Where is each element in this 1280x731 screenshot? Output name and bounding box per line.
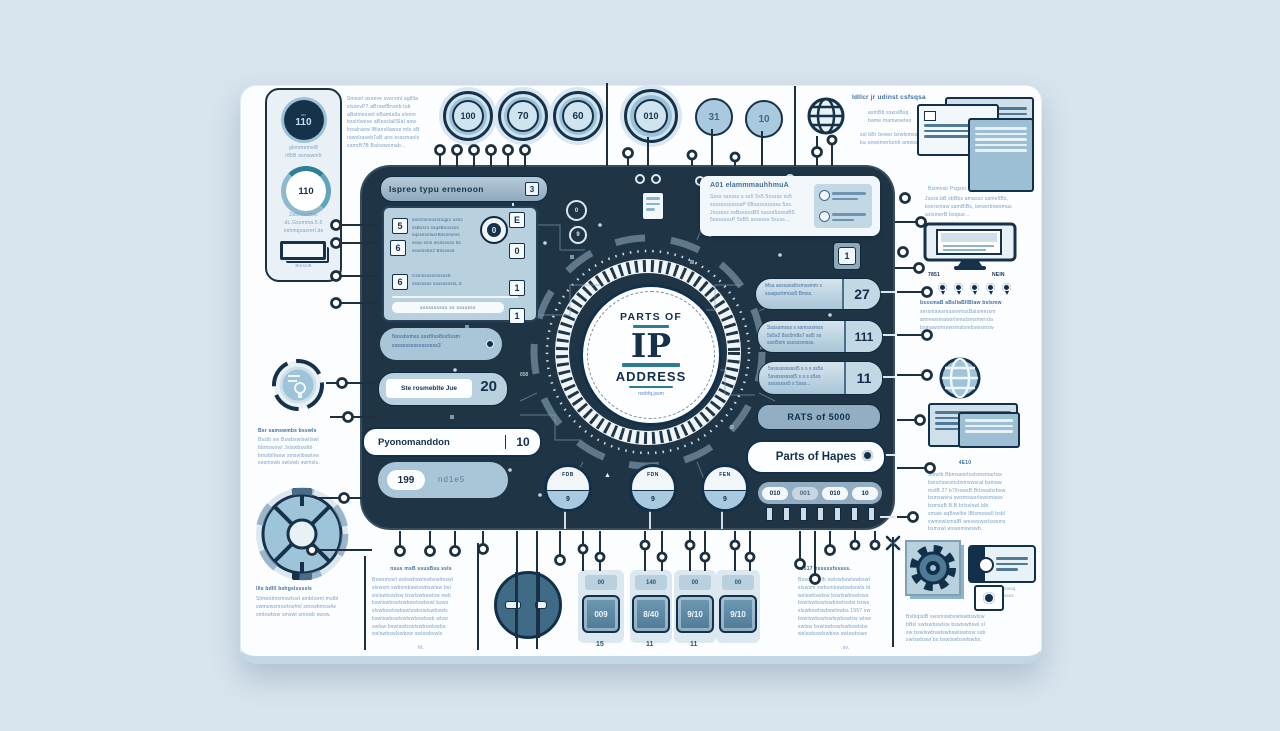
connector-lines <box>0 0 1280 731</box>
infographic-poster: ao 110 glenmemsl8 r85B asnwwm5 110 2a5re… <box>0 0 1280 731</box>
